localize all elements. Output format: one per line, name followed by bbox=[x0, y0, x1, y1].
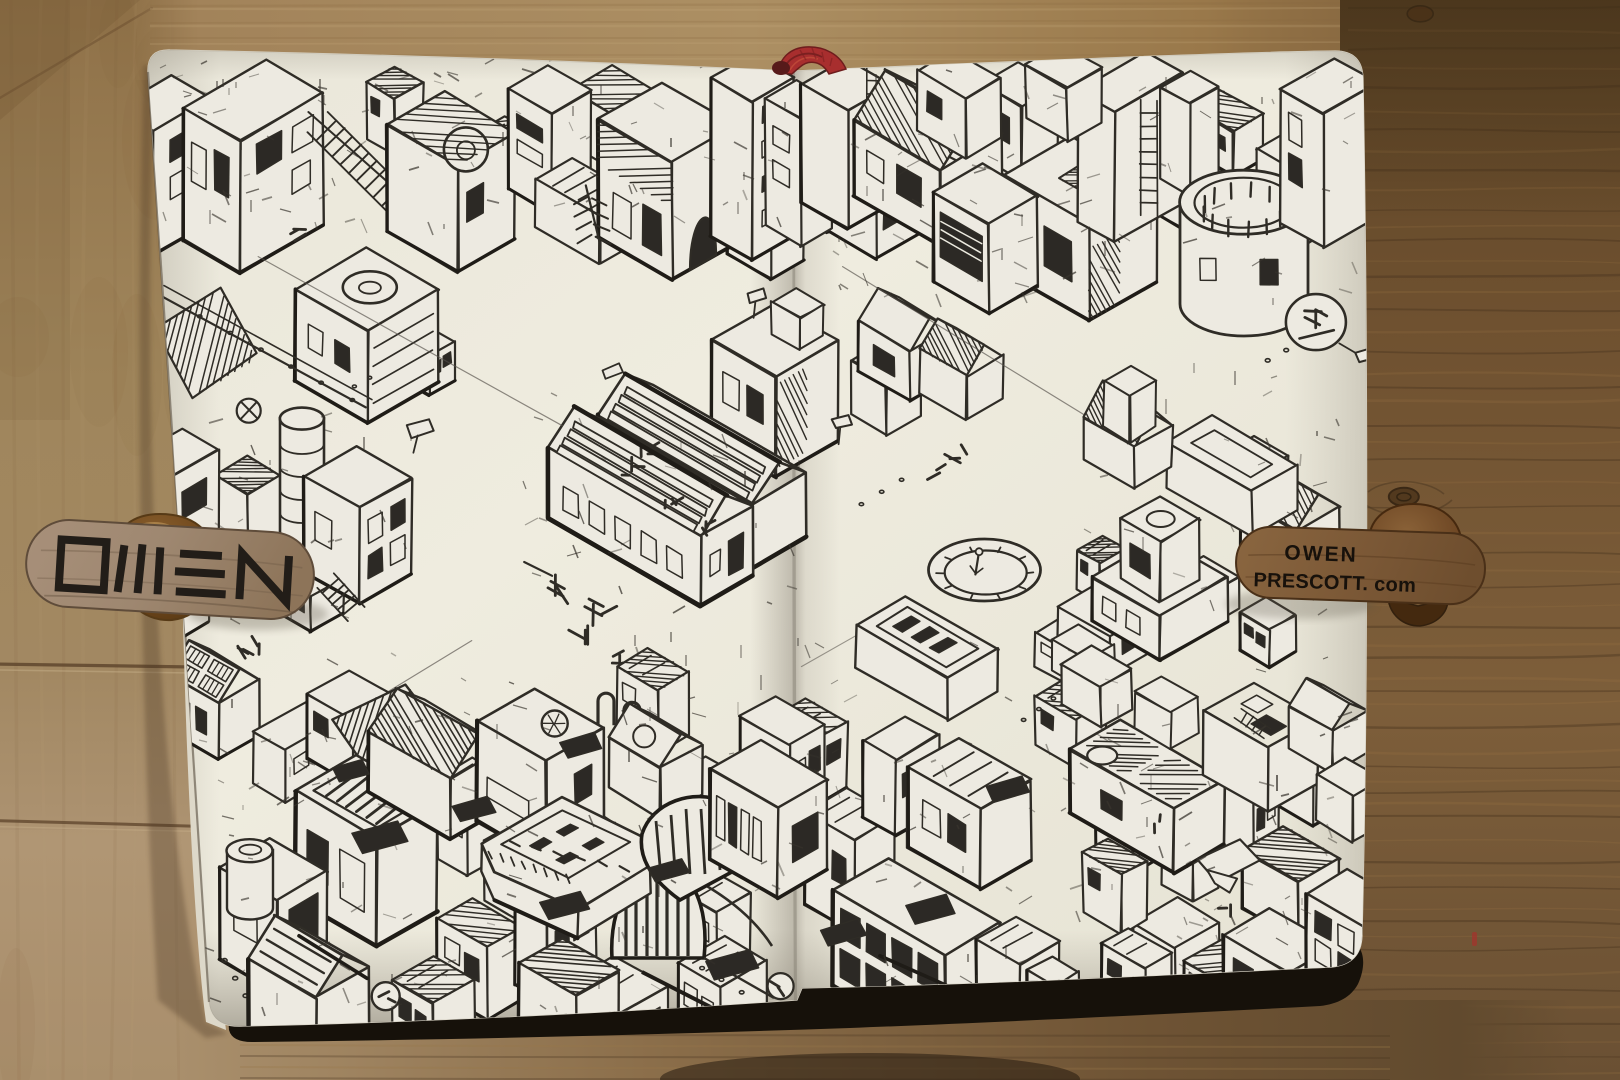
svg-text:OWEN: OWEN bbox=[1284, 541, 1358, 567]
